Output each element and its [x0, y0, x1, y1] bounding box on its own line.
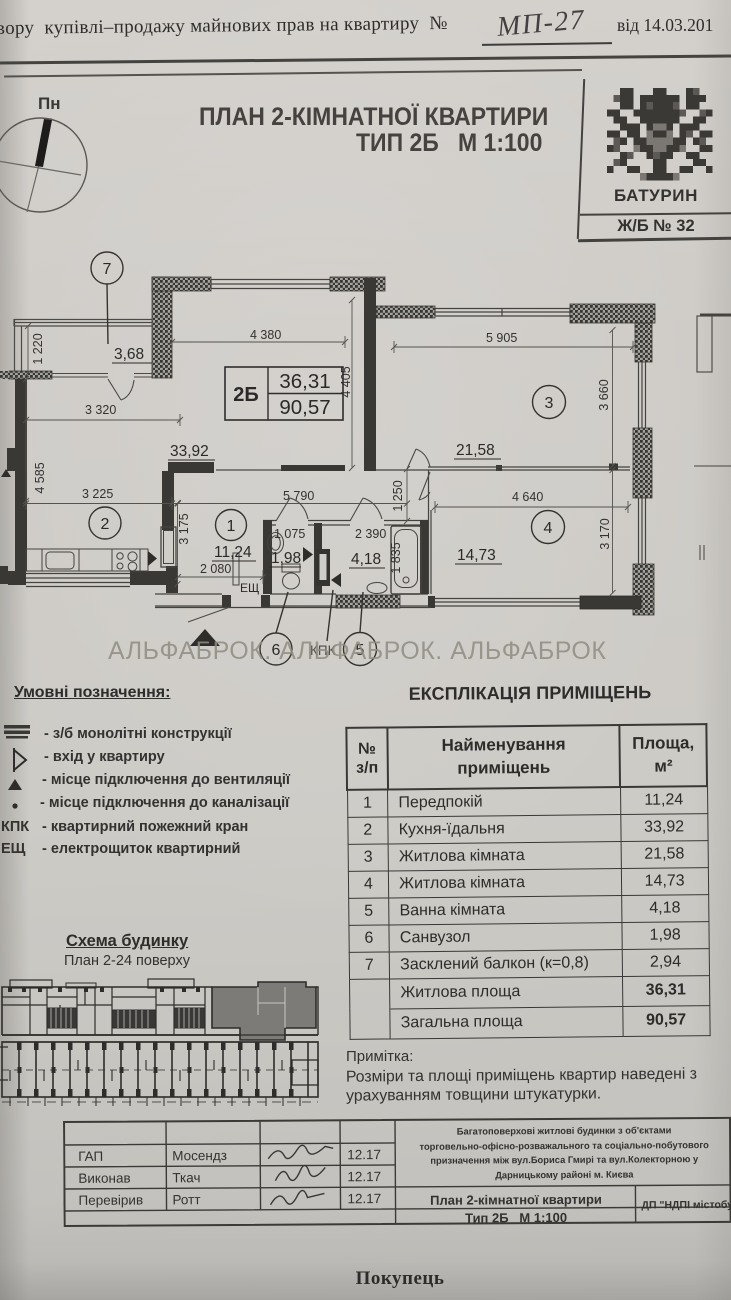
svg-text:4,18: 4,18: [351, 551, 381, 568]
svg-text:14,73: 14,73: [457, 547, 496, 564]
svg-text:ЕЩ: ЕЩ: [240, 581, 259, 595]
svg-text:1 075: 1 075: [274, 527, 305, 541]
svg-text:1: 1: [227, 518, 236, 535]
svg-text:33,92: 33,92: [170, 443, 209, 460]
svg-text:4 585: 4 585: [33, 462, 47, 493]
svg-text:5 905: 5 905: [486, 331, 517, 345]
svg-text:4 380: 4 380: [250, 328, 281, 342]
svg-text:3,68: 3,68: [114, 346, 144, 363]
svg-text:4: 4: [544, 520, 553, 537]
svg-text:1 220: 1 220: [31, 333, 45, 364]
svg-text:21,58: 21,58: [456, 442, 495, 459]
svg-text:1 835: 1 835: [389, 542, 403, 573]
svg-text:3 320: 3 320: [85, 403, 116, 417]
svg-text:3 225: 3 225: [82, 487, 113, 501]
svg-text:36,31: 36,31: [279, 370, 330, 393]
svg-text:2: 2: [101, 516, 110, 533]
svg-text:5 790: 5 790: [283, 489, 314, 503]
svg-text:2 390: 2 390: [355, 527, 386, 541]
svg-text:1 250: 1 250: [391, 480, 405, 511]
svg-text:4 640: 4 640: [512, 490, 543, 504]
svg-text:АЛЬФАБРОК. АЛЬФАБРОК. АЛЬФАБРО: АЛЬФАБРОК. АЛЬФАБРОК. АЛЬФАБРОК: [108, 637, 606, 665]
svg-text:2 080: 2 080: [200, 562, 231, 576]
svg-text:1,98: 1,98: [271, 550, 301, 567]
svg-text:11,24: 11,24: [214, 544, 252, 561]
svg-text:3 170: 3 170: [598, 518, 612, 549]
svg-text:3 660: 3 660: [597, 379, 611, 410]
svg-text:3: 3: [545, 395, 554, 412]
svg-text:90,57: 90,57: [279, 396, 330, 419]
svg-text:2Б: 2Б: [233, 384, 259, 406]
svg-text:3 175: 3 175: [177, 513, 191, 544]
svg-text:7: 7: [103, 261, 112, 278]
